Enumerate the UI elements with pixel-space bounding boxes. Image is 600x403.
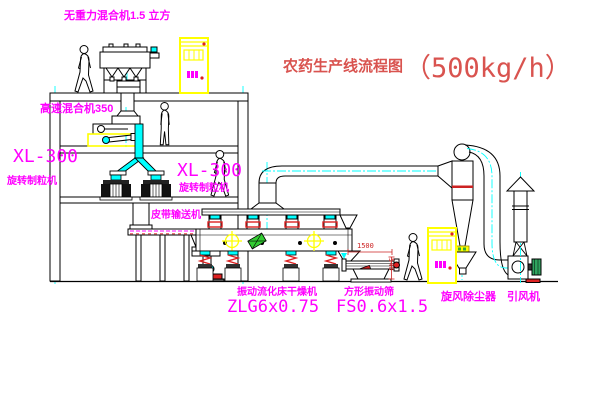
dryer-spring-3 [283,251,299,281]
dryer-spring-4 [323,251,339,281]
label-granulator-left-name: 旋转制粒机 [7,177,57,187]
label-screen-model: FS0.6x1.5 [336,299,428,316]
drawing-canvas: 农药生产线流程图 （500kg/h） 无重力混合机1.5 立方 高速混合机350… [0,0,600,403]
exhaust-duct-drawing [251,166,452,209]
title-text: 农药生产线流程图 [283,55,403,76]
chute-y [110,158,164,175]
granulator-left-drawing [100,175,132,200]
belt-conveyor-drawing [128,229,196,281]
label-gravity-mixer: 无重力混合机1.5 立方 [64,11,170,22]
title-capacity: （500kg/h） [404,46,572,85]
worker-ground [404,234,422,281]
worker-floor2 [160,102,169,144]
label-granulator-right-name: 旋转制粒机 [179,184,229,194]
control-cabinet-top [180,38,208,93]
dim-screen-height: 540 [387,258,394,271]
label-cyclone: 旋风除尘器 [441,292,496,303]
granulator-right-drawing [140,175,172,200]
worker-roof [75,46,93,93]
label-high-speed-mixer: 高速混合机350 [40,104,113,115]
label-dryer-model: ZLG6x0.75 [227,299,319,316]
discharge-chute [130,203,152,229]
label-granulator-right-model: XL-300 [177,162,242,180]
dim-screen-length: 1500 [357,243,374,250]
diagram-title: 农药生产线流程图 （500kg/h） [283,46,572,85]
fan-drawing [508,242,541,283]
label-fan: 引风机 [507,292,540,303]
label-granulator-left-model: XL-300 [13,148,78,166]
control-cabinet-bottom [428,228,456,283]
label-belt-conveyor: 皮带输送机 [151,211,201,221]
